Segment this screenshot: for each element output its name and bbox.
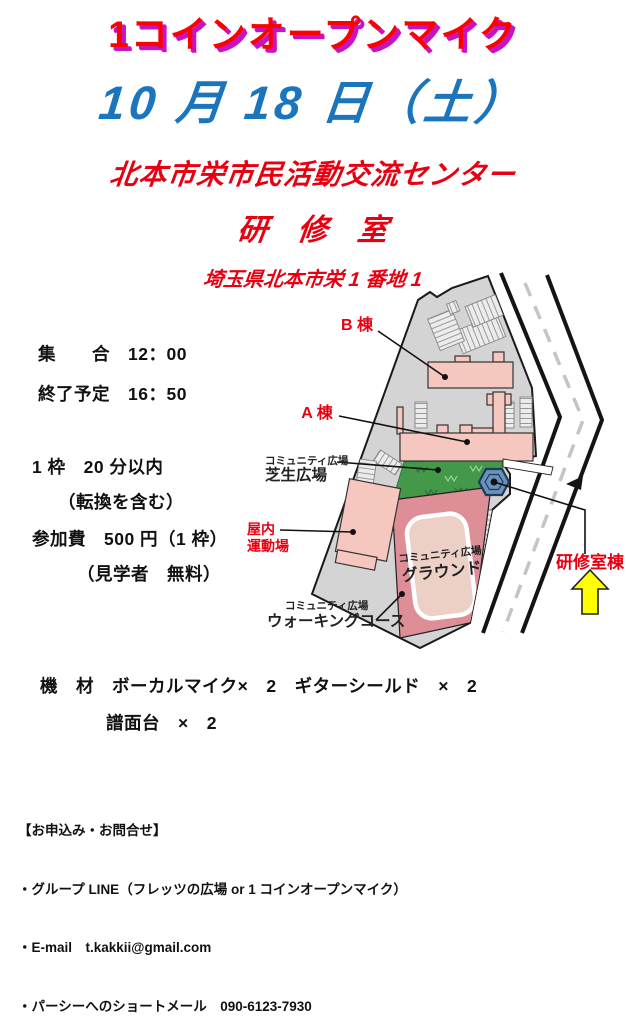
meeting-time-line: 集 合 12：00 [38,341,187,366]
equipment-line-2: 譜面台 × 2 [106,710,217,735]
fee-line: 参加費 500 円（1 枠） [32,526,228,551]
venue-name: 北本市栄市民活動交流センター [0,153,626,193]
event-date: 10 月 18 日（土） [0,64,626,133]
slot-length-line: 1 枠 20 分以内 [32,454,163,479]
map-label-walking: ウォーキングコース [267,611,405,630]
map-label-indoor-1: 屋内 [247,521,275,537]
contact-block: 【お申込み・お問合せ】 ・グループ LINE（フレッツの広場 or 1 コインオ… [18,782,407,1036]
map-label-building-b: B 棟 [341,315,374,334]
map-label-indoor-2: 運動場 [247,538,289,554]
event-title: 1コインオープンマイク [0,4,626,58]
map-label-lawn: 芝生広場 [265,465,328,484]
parking-lot [520,397,532,427]
parking-lot [415,402,427,428]
contact-item-email: ・E-mail t.kakkii@gmail.com [18,938,407,958]
map-label-walking-small: コミュニティ広場 [285,599,369,612]
end-time-line: 終了予定 16：50 [38,381,187,406]
contact-item-phone: ・パーシーへのショートメール 090-6123-7930 [18,997,407,1017]
room-name: 研 修 室 [0,205,626,249]
contact-item-line: ・グループ LINE（フレッツの広場 or 1 コインオープンマイク） [18,880,407,900]
map-label-training: 研修室棟 [556,552,625,572]
parking-lot [308,496,335,520]
map-label-building-a: A 棟 [301,403,333,422]
equipment-line-1: 機 材 ボーカルマイク× 2 ギターシールド × 2 [40,673,477,698]
contact-heading: 【お申込み・お問合せ】 [18,821,407,841]
map-label-lawn-small: コミュニティ広場 [265,454,349,467]
venue-map: コミュニティ広場 グラウンド [240,268,626,655]
yellow-up-arrow-icon [572,570,608,614]
fee-note-line: （見学者 無料） [77,561,221,586]
slot-note-line: （転換を含む） [58,489,184,514]
